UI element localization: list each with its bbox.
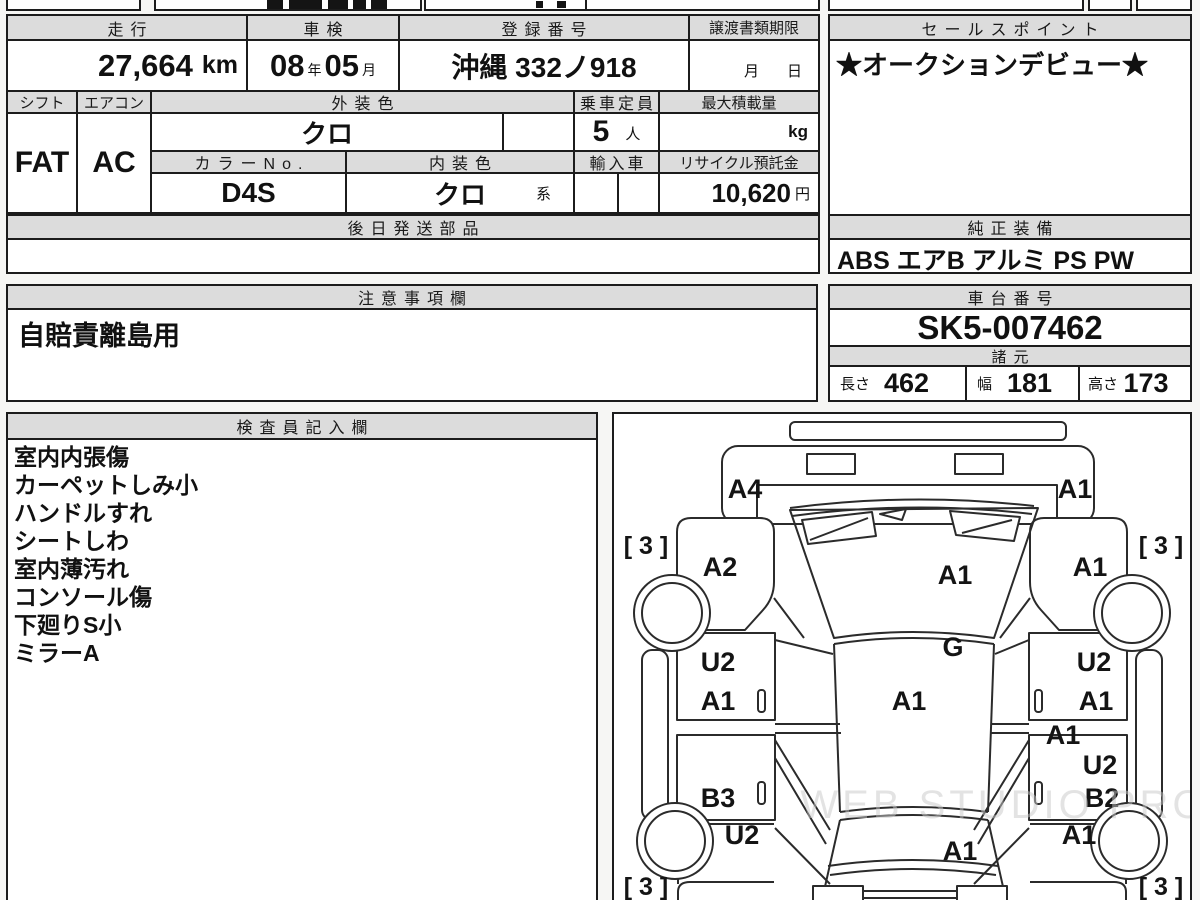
recycle-deposit-header: リサイクル預託金: [658, 150, 820, 174]
inspector-notes-body: 室内内張傷 カーペットしみ小 ハンドルすれ シートしわ 室内薄汚れ コンソール傷…: [6, 438, 598, 900]
aircon-header: エアコン: [76, 90, 152, 114]
width-label: 幅: [977, 373, 992, 394]
capacity-header: 乗車定員: [573, 90, 660, 114]
wheel-front-left: [634, 575, 710, 651]
dimension-length: 長さ 462: [828, 365, 967, 402]
belt-line-right: [991, 724, 1029, 733]
genuine-equipment-header: 純正装備: [828, 214, 1192, 240]
recycle-deposit-value: 10,620 円: [658, 172, 820, 214]
inspection-month-suffix: 月: [362, 60, 376, 80]
length-value: 462: [884, 368, 929, 399]
cropped-row-cell: [6, 0, 141, 11]
tail-lamp-right: [957, 886, 1007, 900]
mileage-unit: km: [202, 51, 238, 80]
damage-front-fender-left: A2: [703, 552, 738, 582]
tire-grade-rear-right: [ 3 ]: [1139, 873, 1183, 900]
capacity-value: 5 人: [573, 112, 660, 152]
notes-header: 注意事項欄: [6, 284, 818, 310]
color-no-value: D4S: [150, 172, 347, 214]
damage-front-door-left-lower: A1: [701, 686, 736, 716]
mileage-number: 27,664: [98, 48, 193, 84]
door-handle: [758, 690, 765, 712]
chassis-number-value: SK5-007462: [828, 308, 1192, 347]
tire-grade-rear-left: [ 3 ]: [624, 873, 668, 900]
notes-value: 自賠責離島用: [6, 308, 818, 402]
cropped-row-cell: [1136, 0, 1192, 11]
dimension-width: 幅 181: [965, 365, 1080, 402]
damage-rear-door-right-upper: U2: [1083, 750, 1118, 780]
interior-color-suffix: 系: [536, 183, 551, 204]
watermark: WEB STUDIO PRO: [800, 783, 1190, 827]
mileage-header: 走行: [6, 14, 248, 41]
roof-front-curve: [834, 638, 994, 644]
mileage-value: 27,664 km: [6, 39, 248, 92]
transfer-month-suffix: 月: [744, 60, 759, 81]
capacity-number: 5: [593, 115, 610, 149]
belt-line-left: [775, 724, 841, 733]
length-label: 長さ: [840, 373, 870, 394]
genuine-equipment-value: ABS エアB アルミ PS PW: [828, 238, 1192, 274]
damage-right-center-pillar: A1: [1046, 720, 1081, 750]
damage-front-door-left-upper: U2: [701, 647, 736, 677]
interior-color-name: クロ: [434, 175, 486, 212]
width-value: 181: [1007, 368, 1052, 399]
registration-value: 沖縄 332ノ918: [398, 39, 690, 92]
recycle-deposit-unit: 円: [795, 183, 810, 204]
inspector-note: ミラーA: [8, 639, 596, 667]
interior-color-header: 内装色: [345, 150, 575, 174]
inspector-note: コンソール傷: [8, 583, 596, 611]
a-pillar-right: [995, 598, 1030, 654]
wheel-rear-left: [637, 803, 713, 879]
wiper-right: [950, 511, 1020, 541]
inspection-year: 08: [270, 48, 304, 84]
car-damage-diagram: A4 A1 A2 A1 A1 G A1 U2 A1 U2 A1 A1 B3 U2…: [614, 414, 1190, 900]
damage-rear-fender-left: U2: [725, 820, 760, 850]
imported-value-cell: [617, 172, 660, 214]
cropped-row-cell: [1088, 0, 1132, 11]
tire-grade-front-right: [ 3 ]: [1139, 532, 1183, 560]
inspector-note: 室内薄汚れ: [8, 555, 596, 583]
tire-grade-front-left: [ 3 ]: [624, 532, 668, 560]
cropped-text-fragment: [267, 0, 283, 9]
damage-hood: A1: [938, 560, 973, 590]
damage-rear-gate: A1: [943, 836, 978, 866]
exterior-color-header: 外装色: [150, 90, 575, 114]
door-handle: [1035, 690, 1042, 712]
inspector-note: シートしわ: [8, 527, 596, 555]
shift-value: FAT: [6, 112, 78, 214]
headlight-left: [807, 454, 855, 474]
damage-cowl: G: [942, 632, 963, 662]
side-sill-left: [642, 650, 668, 820]
damage-front-fender-right: A1: [1073, 552, 1108, 582]
transfer-day-suffix: 日: [787, 60, 802, 81]
tail-lamp-left: [813, 886, 863, 900]
damage-front-bumper-left: A4: [728, 474, 763, 504]
aircon-value: AC: [76, 112, 152, 214]
headlight-right: [955, 454, 1003, 474]
inspection-value: 08 年 05 月: [246, 39, 400, 92]
damage-front-bumper-right: A1: [1058, 474, 1093, 504]
later-parts-value: [6, 238, 820, 274]
damage-front-door-right-lower: A1: [1079, 686, 1114, 716]
front-bumper-strip: [790, 422, 1066, 440]
capacity-unit: 人: [625, 123, 640, 144]
damage-roof: A1: [892, 686, 927, 716]
max-load-value: kg: [658, 112, 820, 152]
damage-rear-door-left: B3: [701, 783, 736, 813]
later-parts-header: 後日発送部品: [6, 214, 820, 240]
car-diagram-box: A4 A1 A2 A1 A1 G A1 U2 A1 U2 A1 A1 B3 U2…: [612, 412, 1192, 900]
shift-header: シフト: [6, 90, 78, 114]
cropped-text-fragment: [289, 0, 322, 9]
chassis-number-header: 車台番号: [828, 284, 1192, 310]
inspection-year-suffix: 年: [308, 60, 322, 80]
registration-header: 登録番号: [398, 14, 690, 41]
sales-point-value: ★オークションデビュー★: [828, 39, 1192, 216]
tailgate-bottom-lines: [863, 891, 957, 898]
height-value: 173: [1123, 368, 1168, 399]
cropped-text-fragment: [557, 1, 566, 8]
imported-value-cell: [573, 172, 619, 214]
cropped-row-cell: [828, 0, 1084, 11]
transfer-deadline-value: 月 日: [688, 39, 820, 92]
exterior-color-spare-cell: [502, 112, 575, 152]
max-load-header: 最大積載量: [658, 90, 820, 114]
imported-header: 輸入車: [573, 150, 660, 174]
cropped-text-fragment: [371, 0, 387, 9]
dimension-height: 高さ 173: [1078, 365, 1192, 402]
interior-color-value: クロ 系: [345, 172, 575, 214]
color-no-header: カラーNo.: [150, 150, 347, 174]
inspection-header: 車検: [246, 14, 400, 41]
transfer-deadline-header: 譲渡書類期限: [688, 14, 820, 41]
exterior-color-value: クロ: [150, 112, 504, 152]
wheel-front-right: [1094, 575, 1170, 651]
cropped-text-fragment: [536, 1, 543, 8]
auction-sheet: 走行 車検 登録番号 譲渡書類期限 27,664 km 08 年 05 月 沖縄…: [0, 0, 1200, 900]
sales-point-header: セールスポイント: [828, 14, 1192, 41]
dimensions-header: 諸元: [828, 345, 1192, 367]
inspector-note: 下廻りS小: [8, 611, 596, 639]
cropped-row-cell: [585, 0, 820, 11]
inspector-note: ハンドルすれ: [8, 499, 596, 527]
damage-front-door-right-upper: U2: [1077, 647, 1112, 677]
door-handle: [758, 782, 765, 804]
inspector-note: カーペットしみ小: [8, 471, 596, 499]
cropped-text-fragment: [353, 0, 366, 9]
cropped-text-fragment: [328, 0, 348, 9]
inspector-notes-header: 検査員記入欄: [6, 412, 598, 440]
inspection-month: 05: [325, 48, 359, 84]
inspector-note: 室内内張傷: [8, 443, 596, 471]
recycle-deposit-number: 10,620: [711, 178, 791, 209]
height-label: 高さ: [1088, 373, 1118, 394]
